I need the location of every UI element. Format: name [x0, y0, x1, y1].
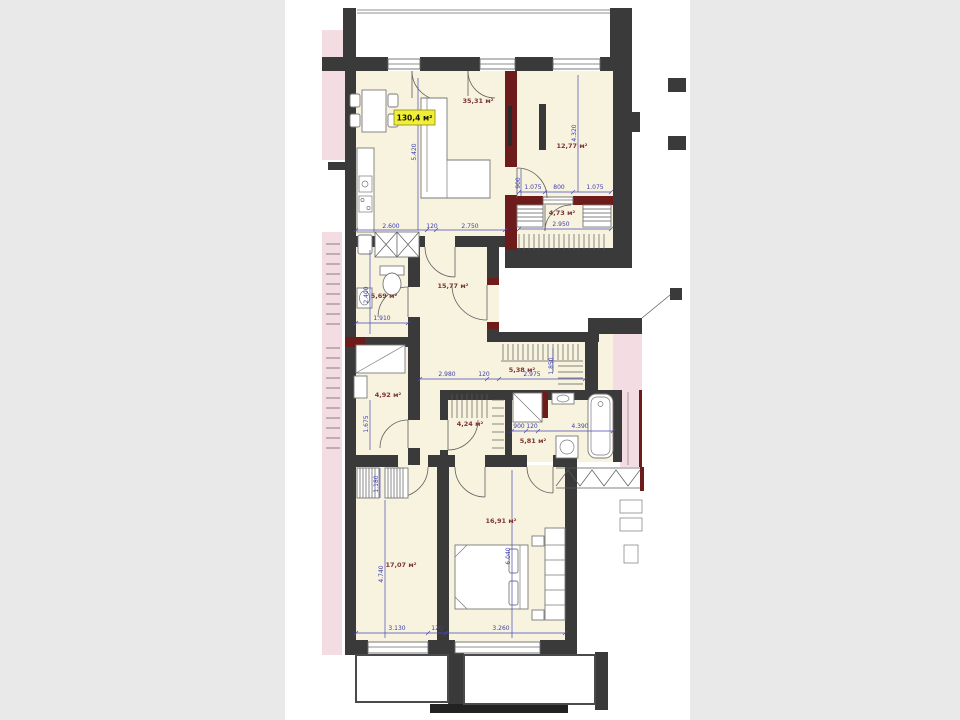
total-area-label: 130,4 м²	[394, 110, 435, 125]
area-shower-room: 5,81 м²	[520, 437, 547, 445]
area-hallway: 15,77 м²	[438, 282, 469, 290]
dim-bedroom-top-h: 4.320	[571, 124, 578, 141]
area-bathroom: 5,69 м²	[371, 292, 398, 300]
balconies	[356, 655, 595, 704]
dim-bedroom-left-niche: 1.180	[373, 475, 380, 492]
area-closet: 4,24 м²	[457, 420, 484, 428]
area-bedroom-left: 17,07 м²	[386, 561, 417, 569]
area-bedroom-top: 12,77 м²	[557, 142, 588, 150]
total-area-text: 130,4 м²	[397, 114, 433, 123]
dim-bedroom-left-w: 3.130	[388, 625, 405, 632]
dim-shower-b: 120	[526, 423, 538, 430]
dim-loggia-w: 2.950	[552, 221, 569, 228]
dim-laundry-h: 1.675	[363, 415, 370, 432]
dim-loggia-c: 1.075	[586, 184, 603, 191]
dim-bedroom-left-h: 4.740	[378, 565, 385, 582]
floor-plan: 2.600 120 2.750 5.420 4.320 900 1.075 80…	[0, 0, 960, 720]
dim-door: 900	[515, 177, 522, 189]
dim-bedroom-right-h: 6.040	[505, 547, 512, 564]
dim-hall-w: 2.980	[438, 371, 455, 378]
area-loggia: 4,73 м²	[549, 209, 576, 217]
area-bedroom-right: 16,91 м²	[486, 517, 517, 525]
dim-shower-a: 900	[513, 423, 525, 430]
dim-loggia-a: 1.075	[524, 184, 541, 191]
dim-living-h: 5.420	[411, 143, 418, 160]
area-laundry: 4,92 м²	[375, 391, 402, 399]
dim-living-a: 2.600	[382, 223, 399, 230]
dim-bath-w: 1.910	[373, 315, 390, 322]
dim-hall-gap: 120	[478, 371, 490, 378]
screenshot: 2.600 120 2.750 5.420 4.320 900 1.075 80…	[0, 0, 960, 720]
dim-bedroom-right-w: 3.260	[492, 625, 509, 632]
dim-wardrobe-h: 1.850	[548, 357, 555, 374]
dim-living-gap: 120	[426, 223, 438, 230]
dim-bottom-gap: 120	[431, 625, 443, 632]
dim-shower-w: 4.390	[571, 423, 588, 430]
dim-bath-h: 2.400	[363, 286, 370, 303]
area-wardrobe: 5,38 м²	[509, 366, 536, 374]
area-kitchen-living: 35,31 м²	[463, 97, 494, 105]
dim-living-b: 2.750	[461, 223, 478, 230]
dim-loggia-b: 800	[553, 184, 565, 191]
